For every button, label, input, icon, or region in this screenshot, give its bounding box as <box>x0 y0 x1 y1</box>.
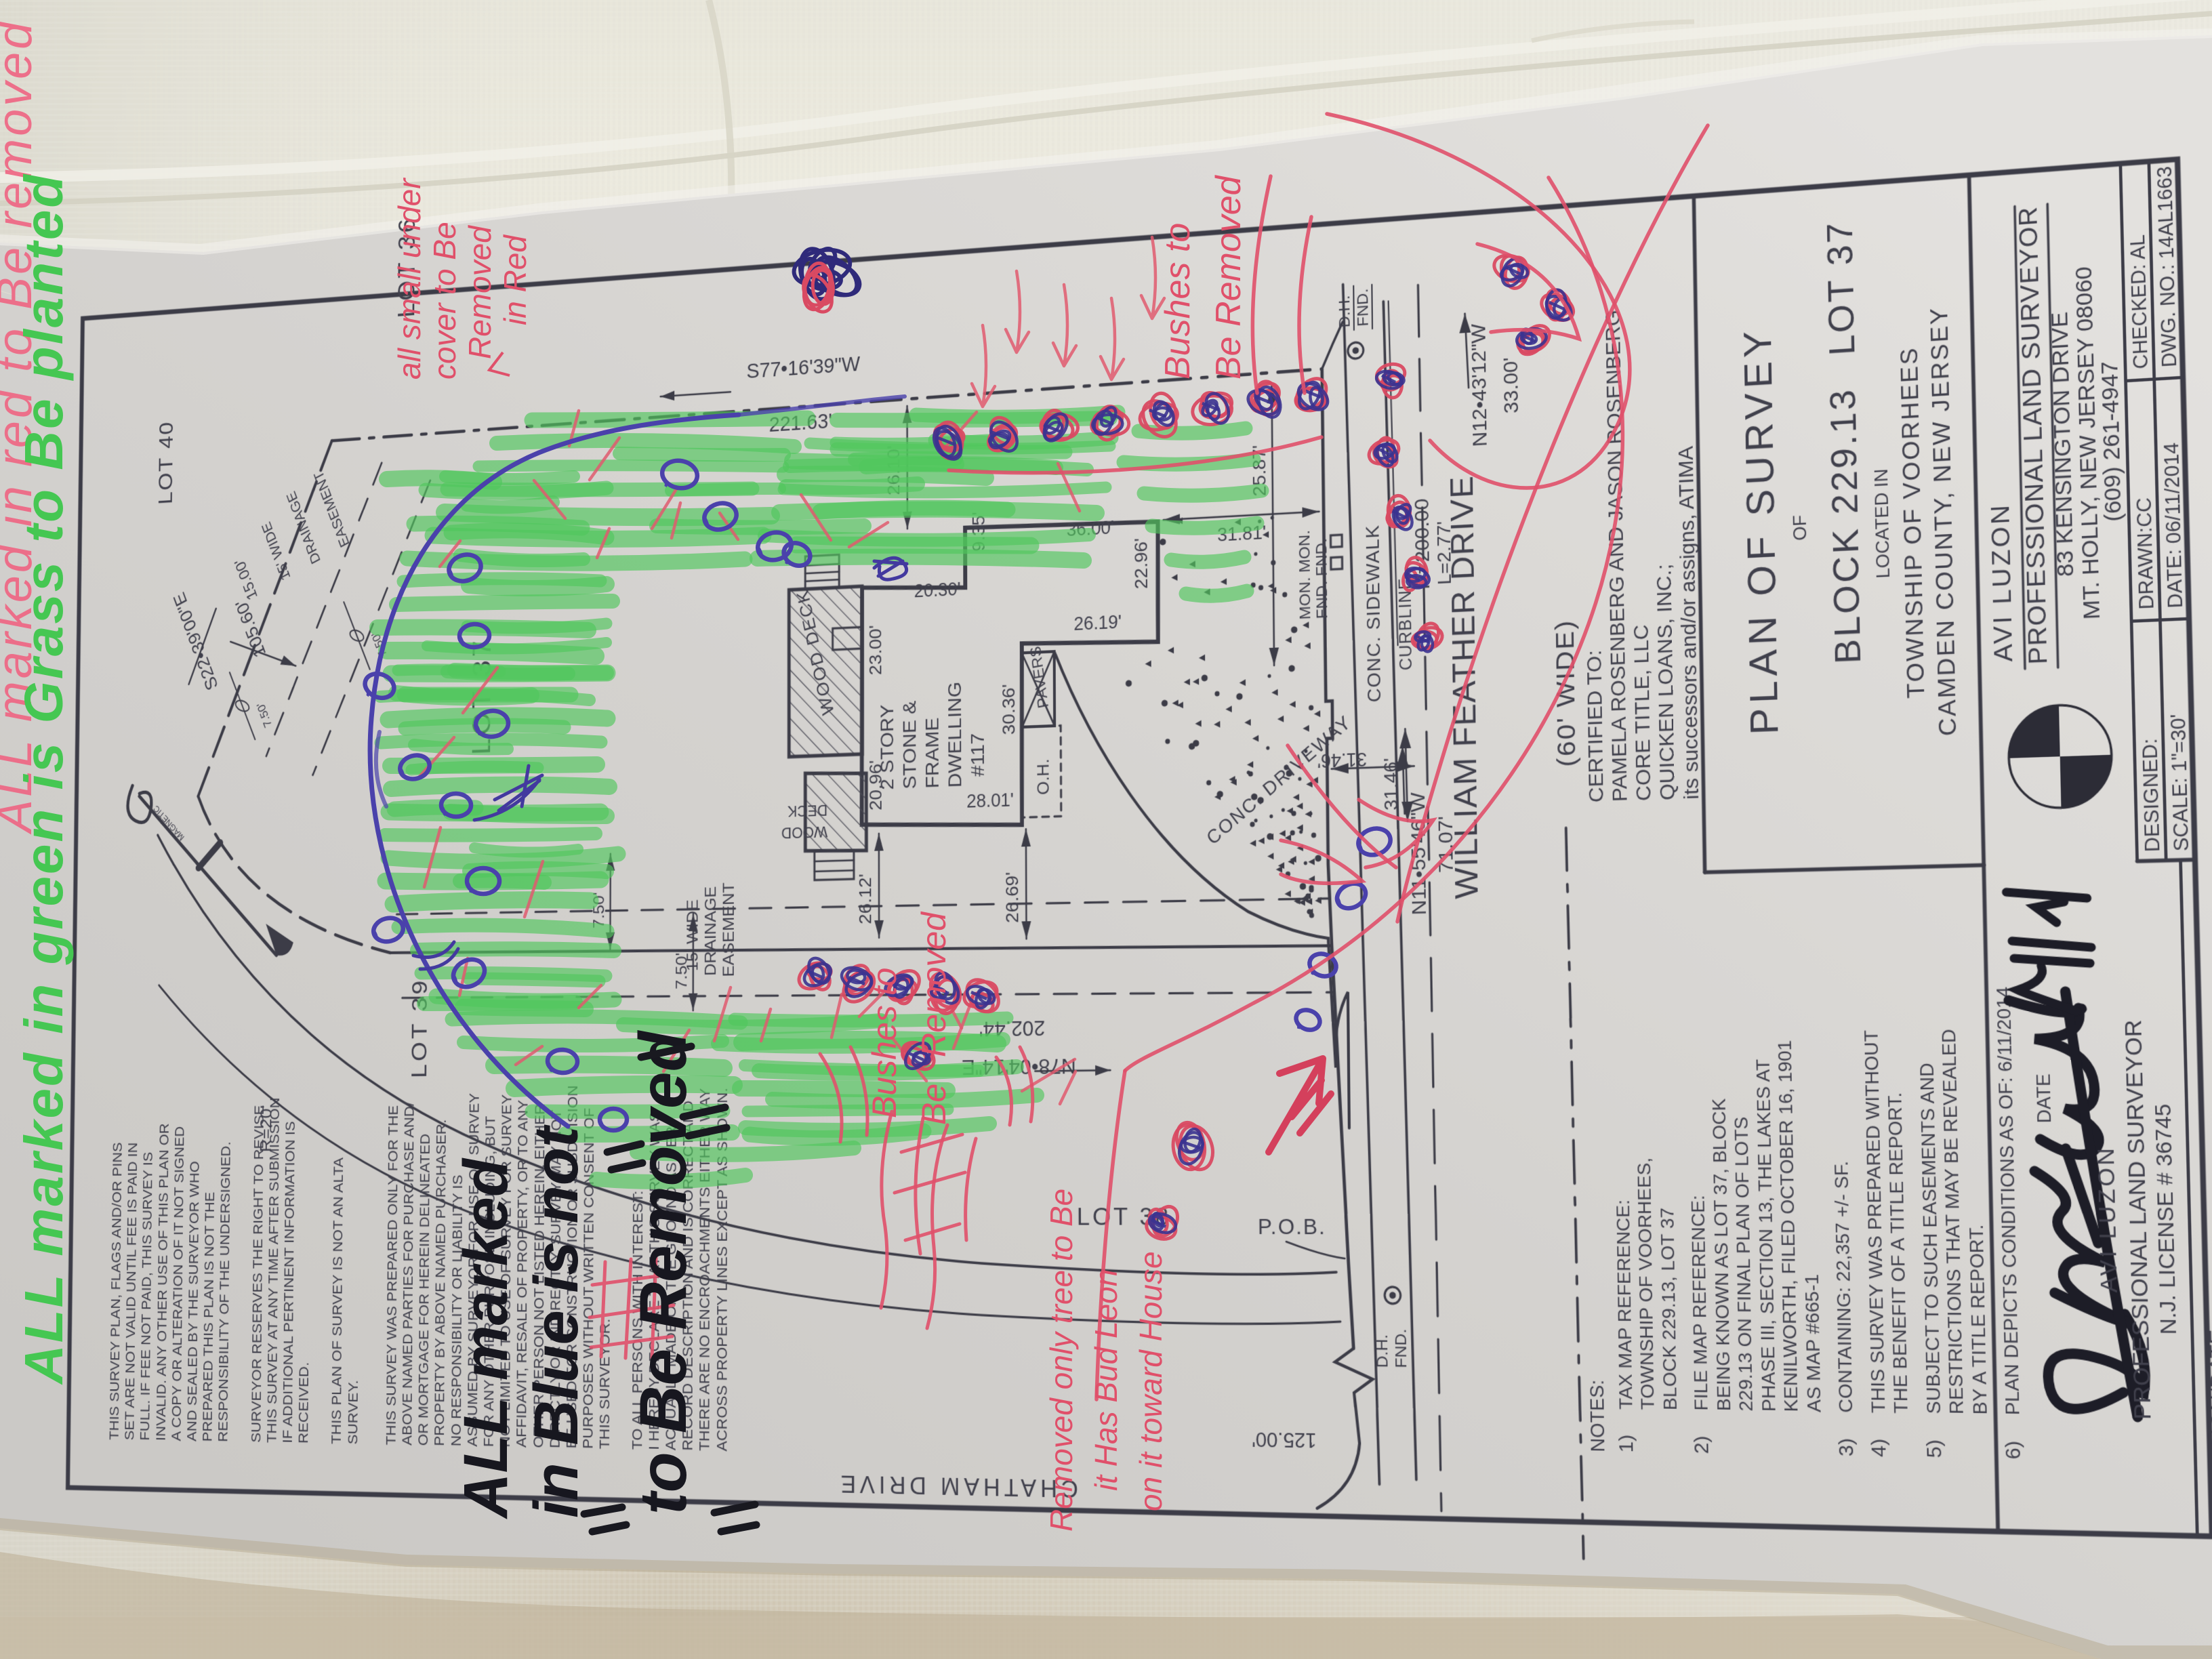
svg-text:in Red: in Red <box>497 234 533 325</box>
svg-text:Removed: Removed <box>915 911 953 1057</box>
svg-text:Removed only tree to Be: Removed only tree to Be <box>1044 1189 1079 1532</box>
svg-text:ALL marked: ALL marked <box>451 1158 520 1519</box>
svg-text:to Be Removed: to Be Removed <box>626 1029 700 1515</box>
svg-text:Be Removed: Be Removed <box>1209 174 1248 380</box>
svg-text:all small under: all small under <box>392 178 427 380</box>
svg-text:cover to Be: cover to Be <box>427 222 462 380</box>
svg-text:in Blue is not: in Blue is not <box>522 1124 591 1518</box>
svg-text:on it toward House: on it toward House <box>1133 1251 1168 1511</box>
svg-text:Removed: Removed <box>462 225 497 359</box>
svg-text:Be: Be <box>915 1084 953 1125</box>
svg-text:it Has Bud Leon: it Has Bud Leon <box>1088 1269 1124 1491</box>
svg-text:Bushes to: Bushes to <box>1158 223 1197 380</box>
svg-text:Bushes to: Bushes to <box>865 968 903 1118</box>
svg-text:ALL marked in green is Grass t: ALL marked in green is Grass to Be plant… <box>14 173 74 1385</box>
